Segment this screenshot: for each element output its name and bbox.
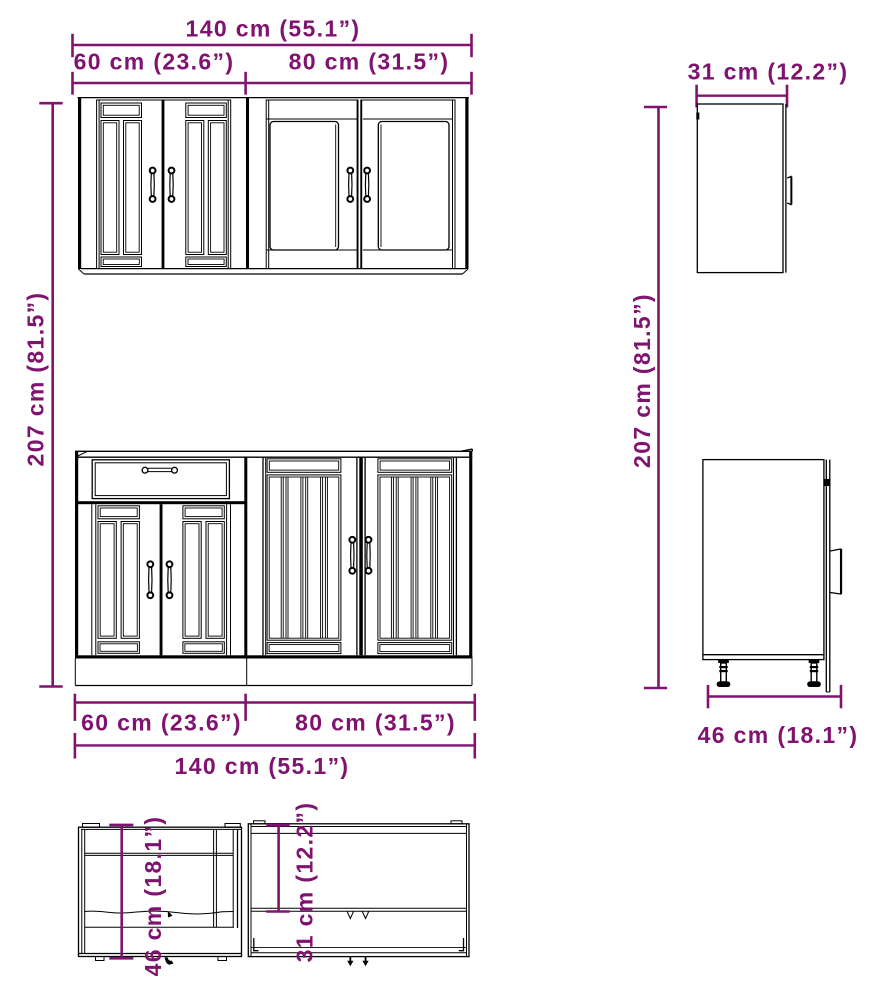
svg-text:46 cm (18.1”): 46 cm (18.1”) xyxy=(140,816,166,977)
svg-text:207 cm (81.5”): 207 cm (81.5”) xyxy=(23,292,49,467)
svg-text:80 cm (31.5”): 80 cm (31.5”) xyxy=(295,710,456,736)
svg-text:60 cm (23.6”): 60 cm (23.6”) xyxy=(74,49,235,75)
svg-text:140 cm (55.1”): 140 cm (55.1”) xyxy=(186,16,361,42)
svg-text:31 cm (12.2”): 31 cm (12.2”) xyxy=(292,802,318,963)
svg-text:31 cm (12.2”): 31 cm (12.2”) xyxy=(688,59,849,85)
svg-text:80 cm (31.5”): 80 cm (31.5”) xyxy=(289,49,450,75)
svg-text:207 cm (81.5”): 207 cm (81.5”) xyxy=(629,293,655,468)
svg-text:46 cm (18.1”): 46 cm (18.1”) xyxy=(698,722,859,748)
svg-text:140 cm (55.1”): 140 cm (55.1”) xyxy=(175,753,350,779)
svg-text:60 cm (23.6”): 60 cm (23.6”) xyxy=(81,710,242,736)
